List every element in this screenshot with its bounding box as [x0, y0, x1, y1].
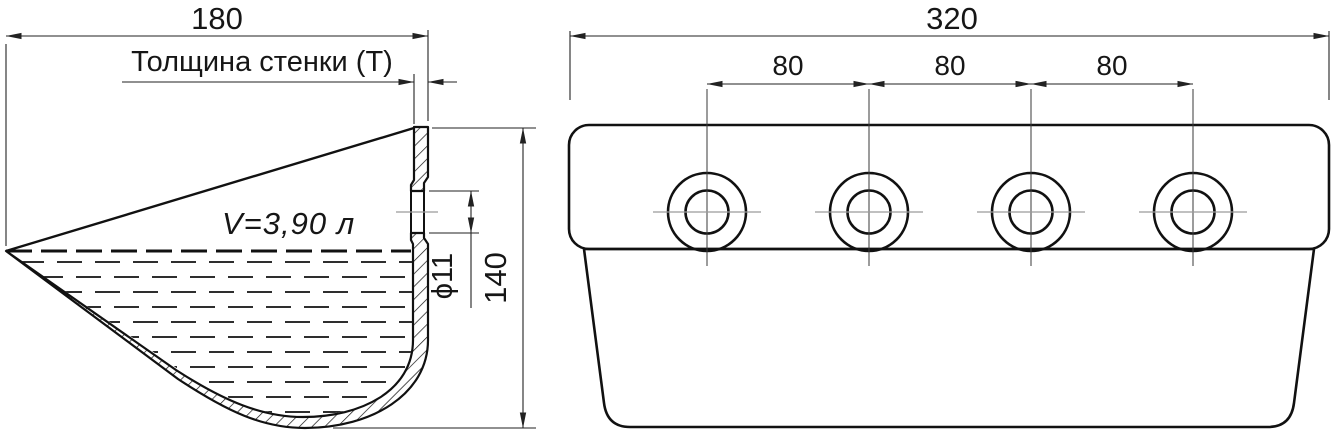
dim-label-180: 180 [191, 1, 243, 36]
technical-drawing-sheet: 180 Толщина стенки (Т) V=3,90 л ϕ11 140 [0, 0, 1332, 433]
hole-2 [815, 89, 923, 266]
volume-label: V=3,90 л [222, 206, 355, 241]
dimension-wall-thickness: Толщина стенки (Т) [122, 46, 457, 124]
mounting-holes [653, 89, 1247, 266]
right-view-front: 320 80 80 80 [569, 1, 1329, 427]
wall-section-above-hole [411, 127, 428, 191]
dim-label-80-3: 80 [1096, 50, 1127, 81]
dim-label-80-1: 80 [772, 50, 803, 81]
wall-thickness-label: Толщина стенки (Т) [131, 46, 393, 78]
left-view-section: 180 Толщина стенки (Т) V=3,90 л ϕ11 140 [6, 1, 536, 428]
dimension-hole-diameter: ϕ11 [427, 191, 479, 308]
back-plate [569, 125, 1329, 249]
bucket-drawing-svg: 180 Толщина стенки (Т) V=3,90 л ϕ11 140 [0, 0, 1332, 433]
dim-label-140: 140 [478, 252, 513, 304]
dimension-180: 180 [6, 1, 428, 246]
dimension-hole-spacing: 80 80 80 [707, 50, 1193, 84]
dim-label-80-2: 80 [934, 50, 965, 81]
hole-3 [977, 89, 1085, 266]
hole-4 [1139, 89, 1247, 266]
bucket-body [584, 249, 1314, 427]
hole-1 [653, 89, 761, 266]
dim-label-320: 320 [926, 1, 978, 36]
dim-label-hole-diameter: ϕ11 [427, 253, 459, 299]
